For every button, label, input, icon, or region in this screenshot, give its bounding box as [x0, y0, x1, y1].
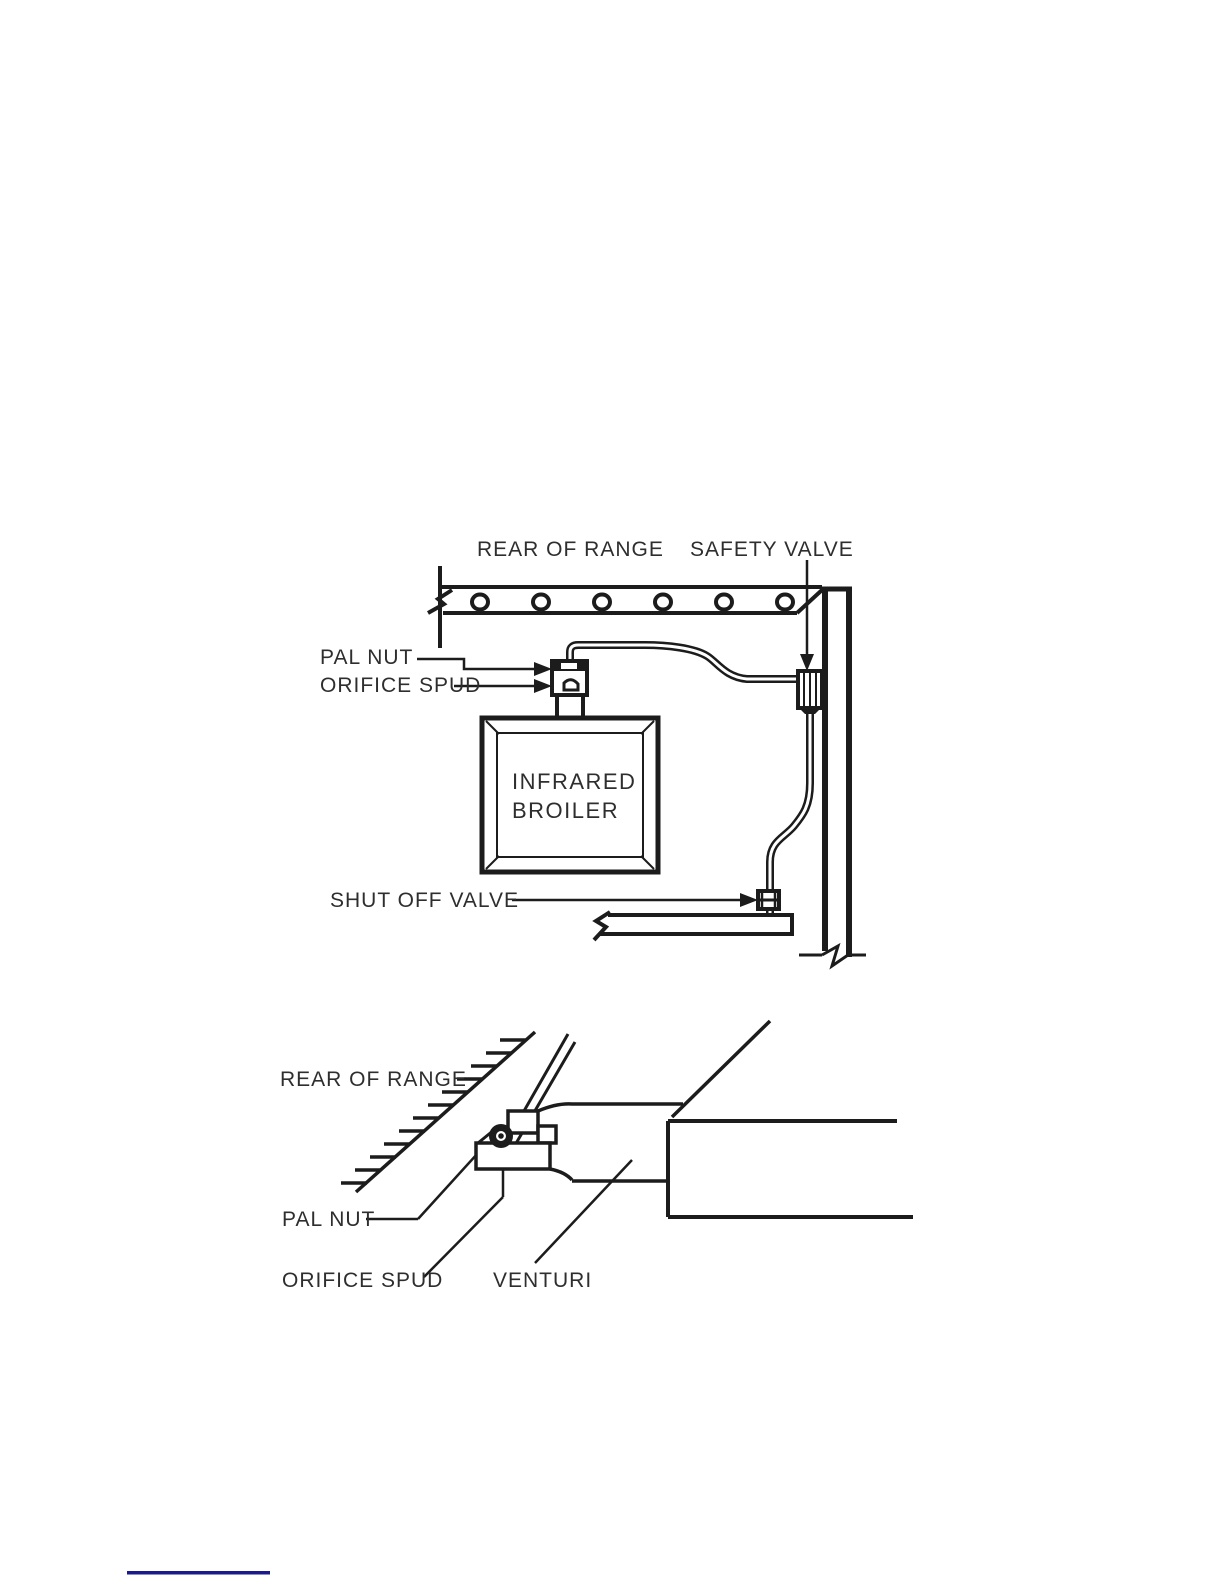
partial-link-underline[interactable] [127, 1571, 270, 1575]
arrowhead-icon [534, 679, 552, 693]
label-safety-valve: SAFETY VALVE [690, 538, 854, 561]
broiler-label-line2: BROILER [512, 798, 619, 823]
bottom-diagram: REAR OF RANGE PAL NUT ORIFICE SPUD VENTU… [280, 1021, 913, 1292]
label-pal-nut-top: PAL NUT [320, 646, 413, 669]
label-rear-of-range-bottom: REAR OF RANGE [280, 1068, 467, 1091]
label-orifice-spud-top: ORIFICE SPUD [320, 674, 481, 697]
arrowhead-icon [740, 893, 758, 907]
shut-off-valve [758, 891, 779, 909]
label-shut-off-valve: SHUT OFF VALVE [330, 889, 519, 912]
manual-page: INFRARED BROILER REAR OF RANGE SAFETY VA… [0, 0, 1224, 1584]
label-venturi: VENTURI [493, 1269, 592, 1292]
break-symbol-icon [799, 946, 866, 966]
burner-duct [668, 1021, 913, 1217]
broiler-box: INFRARED BROILER [482, 718, 658, 872]
pal-nut-detail [489, 1124, 513, 1148]
orifice-spud [564, 680, 578, 690]
venturi-tube [538, 1104, 683, 1181]
arrowhead-icon [800, 654, 814, 671]
supply-pipe [770, 714, 810, 916]
gas-supply-tube [570, 645, 798, 679]
top-diagram: INFRARED BROILER REAR OF RANGE SAFETY VA… [320, 538, 866, 966]
label-orifice-spud-bottom: ORIFICE SPUD [282, 1269, 443, 1292]
diagram-canvas: INFRARED BROILER REAR OF RANGE SAFETY VA… [0, 0, 1224, 1584]
orifice-spud-detail [476, 1111, 556, 1169]
shut-off-valve-leader [512, 893, 758, 907]
pal-nut-leader-bottom [366, 1142, 488, 1219]
label-pal-nut-bottom: PAL NUT [282, 1208, 375, 1231]
safety-valve [798, 560, 822, 714]
manifold-bar [594, 912, 792, 940]
venturi-leader [535, 1160, 632, 1263]
broiler-label-line1: INFRARED [512, 769, 636, 794]
mounting-holes [472, 595, 793, 610]
arrowhead-icon [534, 662, 552, 676]
label-rear-of-range-top: REAR OF RANGE [477, 538, 664, 561]
pal-nut-fitting [551, 660, 588, 719]
